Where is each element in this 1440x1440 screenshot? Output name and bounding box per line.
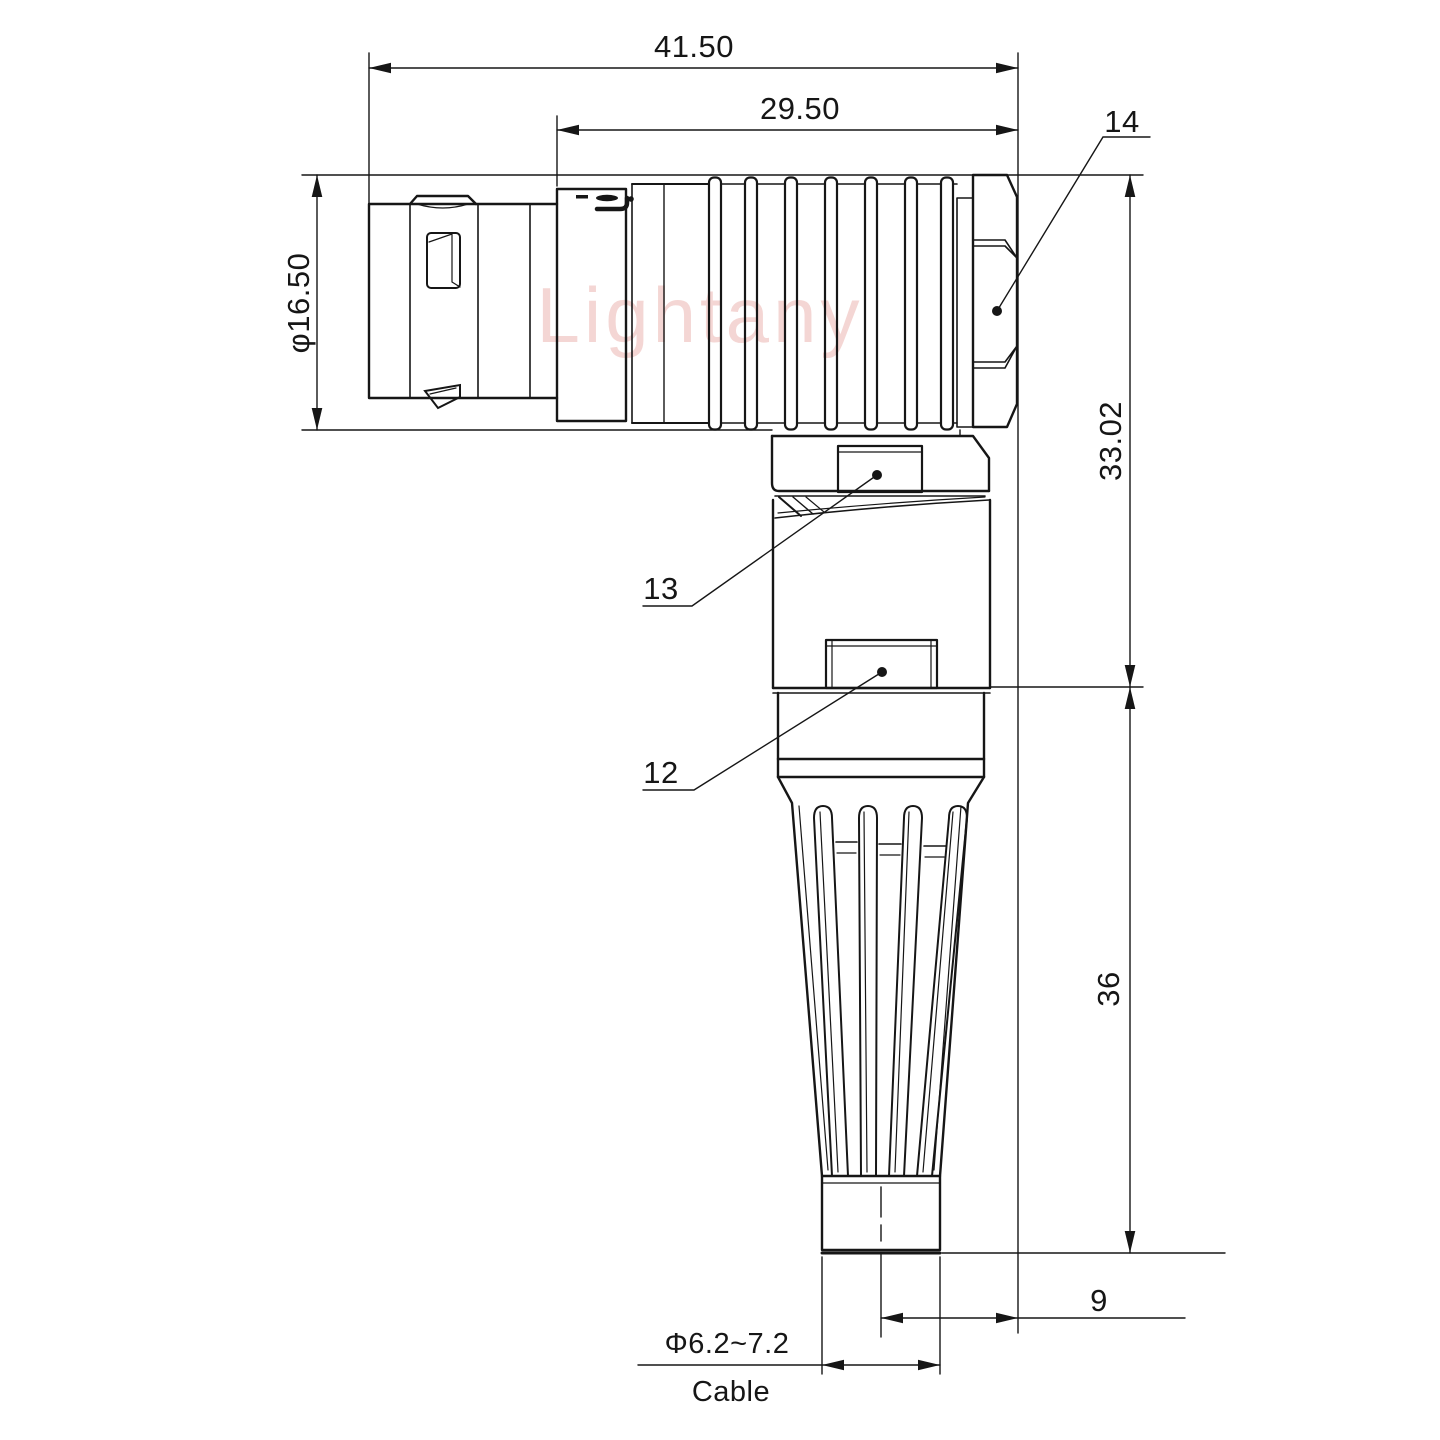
dim-boot-length-value: 36	[1091, 971, 1126, 1006]
leader-dot	[872, 470, 882, 480]
dim-elbow-height-value: 33.02	[1093, 401, 1128, 481]
dim-cable-offset-value: 9	[1090, 1283, 1108, 1318]
marking-blob	[596, 195, 618, 201]
dim-shell-diameter-value: φ16.50	[281, 253, 316, 354]
technical-drawing-page: Lightany	[0, 0, 1440, 1440]
dim-overall-length-value: 41.50	[654, 29, 734, 64]
part-label-13: 13	[643, 571, 678, 606]
marking-dash	[576, 195, 588, 199]
connector-dimension-drawing: Lightany	[0, 0, 1440, 1440]
part-label-14: 14	[1104, 104, 1139, 139]
dim-cable-diameter-value: Φ6.2~7.2	[665, 1328, 790, 1360]
leader-dot	[877, 667, 887, 677]
part-label-12: 12	[643, 755, 678, 790]
leader-dot	[992, 306, 1002, 316]
cable-label: Cable	[692, 1376, 770, 1408]
watermark-text: Lightany	[537, 271, 864, 359]
dim-coupling-length-value: 29.50	[760, 91, 840, 126]
